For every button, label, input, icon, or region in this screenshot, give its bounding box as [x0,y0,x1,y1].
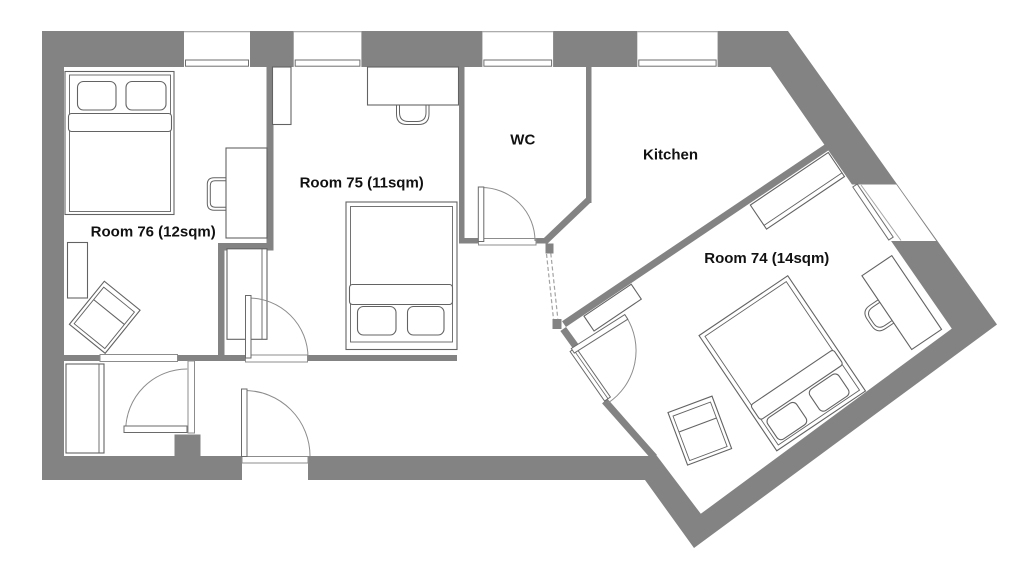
svg-text:WC: WC [510,132,535,149]
svg-text:Room 76 (12sqm): Room 76 (12sqm) [91,224,216,241]
svg-text:Kitchen: Kitchen [643,146,698,163]
svg-text:Room 75 (11sqm): Room 75 (11sqm) [300,175,424,192]
svg-text:Room 74 (14sqm): Room 74 (14sqm) [704,250,829,267]
